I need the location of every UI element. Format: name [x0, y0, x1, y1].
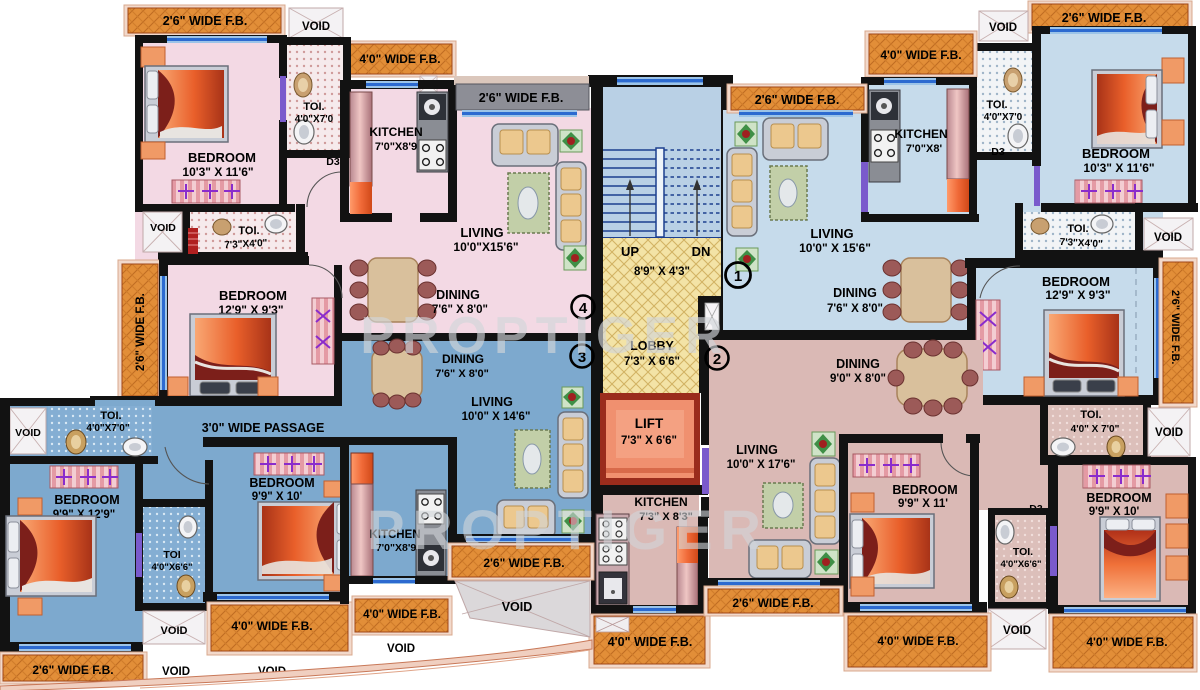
- svg-text:4'0"X7'0": 4'0"X7'0": [86, 423, 129, 434]
- svg-text:2'6" WIDE F.B.: 2'6" WIDE F.B.: [1169, 290, 1181, 364]
- svg-text:BEDROOM: BEDROOM: [188, 150, 256, 165]
- svg-text:BEDROOM: BEDROOM: [54, 493, 119, 507]
- svg-text:2'6" WIDE F.B.: 2'6" WIDE F.B.: [163, 14, 248, 28]
- svg-text:9'9" X 11': 9'9" X 11': [898, 498, 948, 510]
- svg-text:4'0" WIDE F.B.: 4'0" WIDE F.B.: [363, 609, 441, 621]
- svg-text:UP: UP: [621, 244, 639, 259]
- svg-text:VOID: VOID: [502, 600, 533, 614]
- svg-text:VOID: VOID: [1003, 625, 1031, 637]
- svg-text:VOID: VOID: [150, 222, 176, 234]
- svg-text:KITCHEN: KITCHEN: [894, 127, 947, 141]
- svg-text:12'9" X 9'3": 12'9" X 9'3": [1045, 288, 1110, 302]
- svg-text:8'9" X 4'3": 8'9" X 4'3": [634, 266, 690, 278]
- svg-text:3'0" WIDE PASSAGE: 3'0" WIDE PASSAGE: [202, 421, 325, 435]
- svg-text:TOI.: TOI.: [1080, 409, 1101, 421]
- svg-text:TOI.: TOI.: [986, 99, 1007, 111]
- svg-text:TOI.: TOI.: [1067, 223, 1088, 235]
- svg-text:PROPTIGER: PROPTIGER: [367, 498, 769, 561]
- svg-text:VOID: VOID: [161, 625, 188, 637]
- svg-text:TOI.: TOI.: [303, 101, 324, 113]
- svg-text:4'0" WIDE F.B.: 4'0" WIDE F.B.: [877, 634, 958, 648]
- svg-text:7'6" X 8'0": 7'6" X 8'0": [827, 303, 883, 315]
- svg-text:DINING: DINING: [833, 286, 877, 300]
- svg-text:TOI.: TOI.: [1013, 546, 1033, 558]
- svg-text:10'0" X 15'6": 10'0" X 15'6": [799, 241, 871, 255]
- svg-text:7'3"X4'0": 7'3"X4'0": [1059, 237, 1103, 250]
- svg-text:LIVING: LIVING: [810, 226, 853, 241]
- svg-text:BEDROOM: BEDROOM: [1086, 491, 1151, 505]
- svg-text:DINING: DINING: [836, 357, 880, 371]
- svg-text:D3: D3: [991, 146, 1005, 158]
- svg-text:4'0"X6'6": 4'0"X6'6": [152, 562, 193, 573]
- svg-text:2'6" WIDE F.B.: 2'6" WIDE F.B.: [32, 663, 113, 677]
- svg-text:7'3" X 6'6": 7'3" X 6'6": [621, 435, 677, 447]
- svg-text:9'0" X 8'0": 9'0" X 8'0": [830, 373, 886, 385]
- svg-text:VOID: VOID: [1155, 427, 1183, 439]
- svg-text:4'0" X 7'0": 4'0" X 7'0": [1071, 424, 1120, 435]
- svg-text:9'9" X 10': 9'9" X 10': [252, 491, 303, 503]
- svg-text:2'6" WIDE F.B.: 2'6" WIDE F.B.: [732, 596, 813, 610]
- svg-text:10'3" X 11'6": 10'3" X 11'6": [1083, 161, 1154, 175]
- svg-text:VOID: VOID: [387, 643, 415, 655]
- svg-text:VOID: VOID: [15, 427, 41, 439]
- svg-text:BEDROOM: BEDROOM: [1082, 146, 1150, 161]
- svg-text:KITCHEN: KITCHEN: [369, 125, 422, 139]
- svg-text:TOI: TOI: [163, 549, 180, 561]
- svg-text:4'0" WIDE F.B.: 4'0" WIDE F.B.: [1086, 635, 1167, 649]
- svg-text:7'6" X 8'0": 7'6" X 8'0": [435, 368, 489, 380]
- svg-text:10'0" X 14'6": 10'0" X 14'6": [462, 411, 531, 423]
- svg-text:4'0" WIDE F.B.: 4'0" WIDE F.B.: [608, 635, 693, 649]
- svg-text:VOID: VOID: [989, 22, 1017, 34]
- svg-text:BEDROOM: BEDROOM: [892, 483, 957, 497]
- svg-text:10'3" X 11'6": 10'3" X 11'6": [182, 165, 253, 179]
- svg-text:LIVING: LIVING: [471, 395, 513, 409]
- svg-text:LIVING: LIVING: [460, 225, 503, 240]
- svg-text:BEDROOM: BEDROOM: [1042, 274, 1110, 289]
- svg-text:D3: D3: [326, 156, 340, 168]
- svg-text:BEDROOM: BEDROOM: [219, 288, 287, 303]
- svg-text:7'0"X8': 7'0"X8': [906, 143, 943, 155]
- svg-text:9'9" X 10': 9'9" X 10': [1089, 506, 1140, 518]
- svg-text:2'6" WIDE F.B.: 2'6" WIDE F.B.: [755, 93, 840, 107]
- svg-text:PROPTIGER: PROPTIGER: [360, 307, 729, 365]
- svg-text:4'0"X7'0: 4'0"X7'0: [984, 112, 1023, 123]
- svg-text:VOID: VOID: [1154, 232, 1182, 244]
- svg-text:7'3"X4'0": 7'3"X4'0": [224, 238, 268, 251]
- svg-text:4'0"X7'0: 4'0"X7'0: [295, 114, 334, 125]
- svg-text:7'0"X8'9: 7'0"X8'9: [375, 141, 417, 153]
- svg-text:TOI.: TOI.: [100, 410, 121, 422]
- svg-text:4'0" WIDE F.B.: 4'0" WIDE F.B.: [231, 619, 312, 633]
- svg-text:2'6" WIDE F.B.: 2'6" WIDE F.B.: [1062, 11, 1147, 25]
- svg-text:4'0" WIDE F.B.: 4'0" WIDE F.B.: [359, 52, 440, 66]
- svg-text:LIVING: LIVING: [736, 443, 778, 457]
- svg-text:DN: DN: [692, 244, 711, 259]
- svg-text:1: 1: [734, 268, 742, 285]
- svg-text:DINING: DINING: [436, 288, 480, 302]
- svg-text:10'0" X 17'6": 10'0" X 17'6": [727, 459, 796, 471]
- svg-text:VOID: VOID: [162, 666, 190, 678]
- svg-text:2'6" WIDE F.B.: 2'6" WIDE F.B.: [135, 293, 147, 371]
- svg-text:VOID: VOID: [302, 21, 330, 33]
- svg-text:2'6" WIDE F.B.: 2'6" WIDE F.B.: [479, 91, 564, 105]
- svg-text:4'0" WIDE F.B.: 4'0" WIDE F.B.: [880, 48, 961, 62]
- svg-text:4'0"X6'6": 4'0"X6'6": [1001, 559, 1042, 570]
- svg-text:TOI.: TOI.: [238, 225, 259, 237]
- svg-text:BEDROOM: BEDROOM: [249, 476, 314, 490]
- svg-text:LIFT: LIFT: [635, 416, 664, 431]
- svg-text:10'0"X15'6": 10'0"X15'6": [453, 240, 518, 254]
